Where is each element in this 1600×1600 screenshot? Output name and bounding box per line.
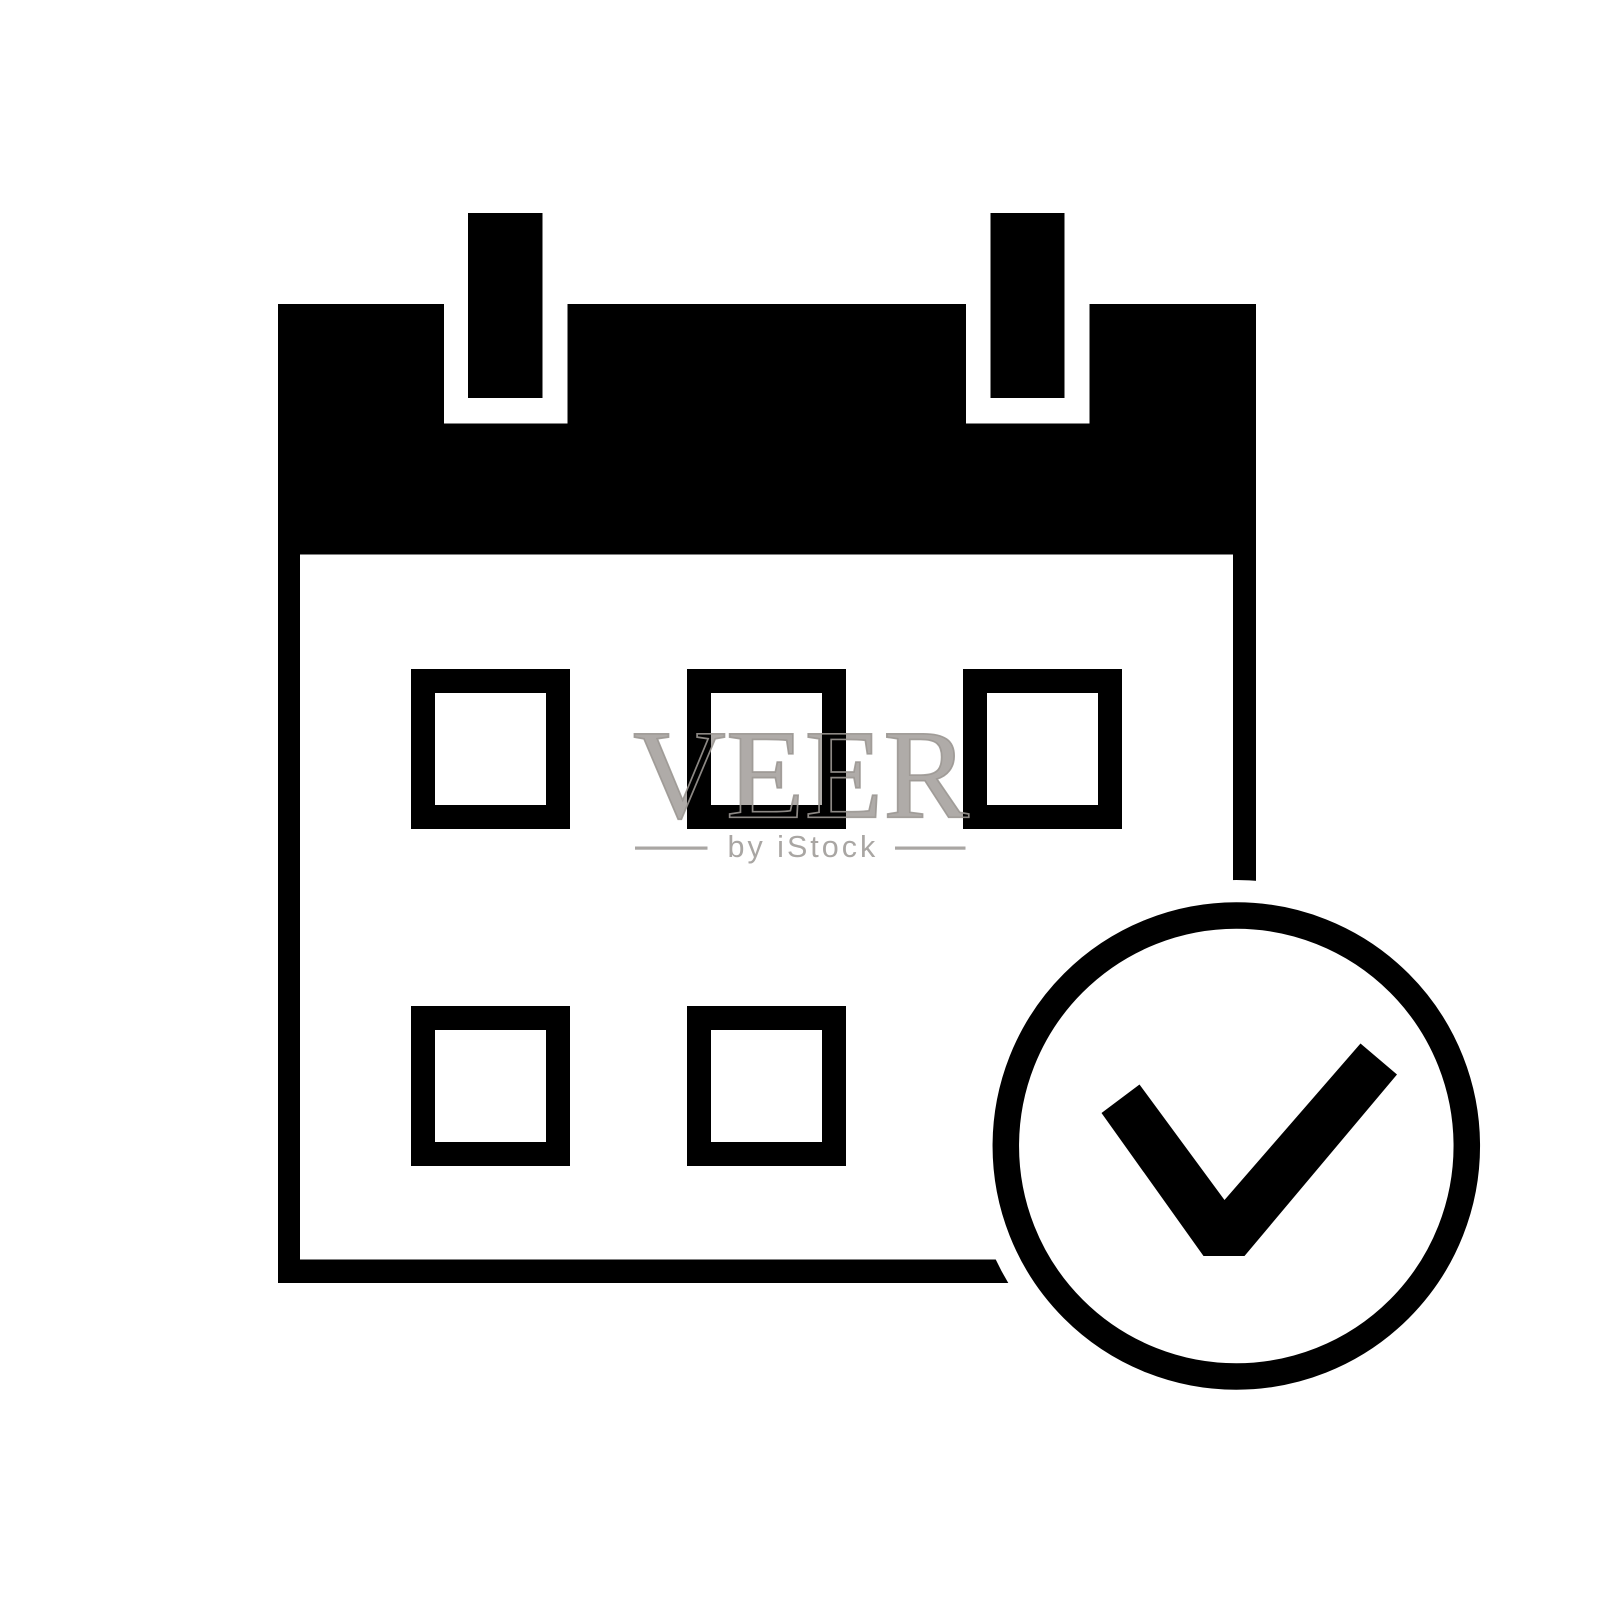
svg-text:VEER: VEER (633, 703, 969, 845)
svg-text:by iStock: by iStock (728, 830, 879, 864)
